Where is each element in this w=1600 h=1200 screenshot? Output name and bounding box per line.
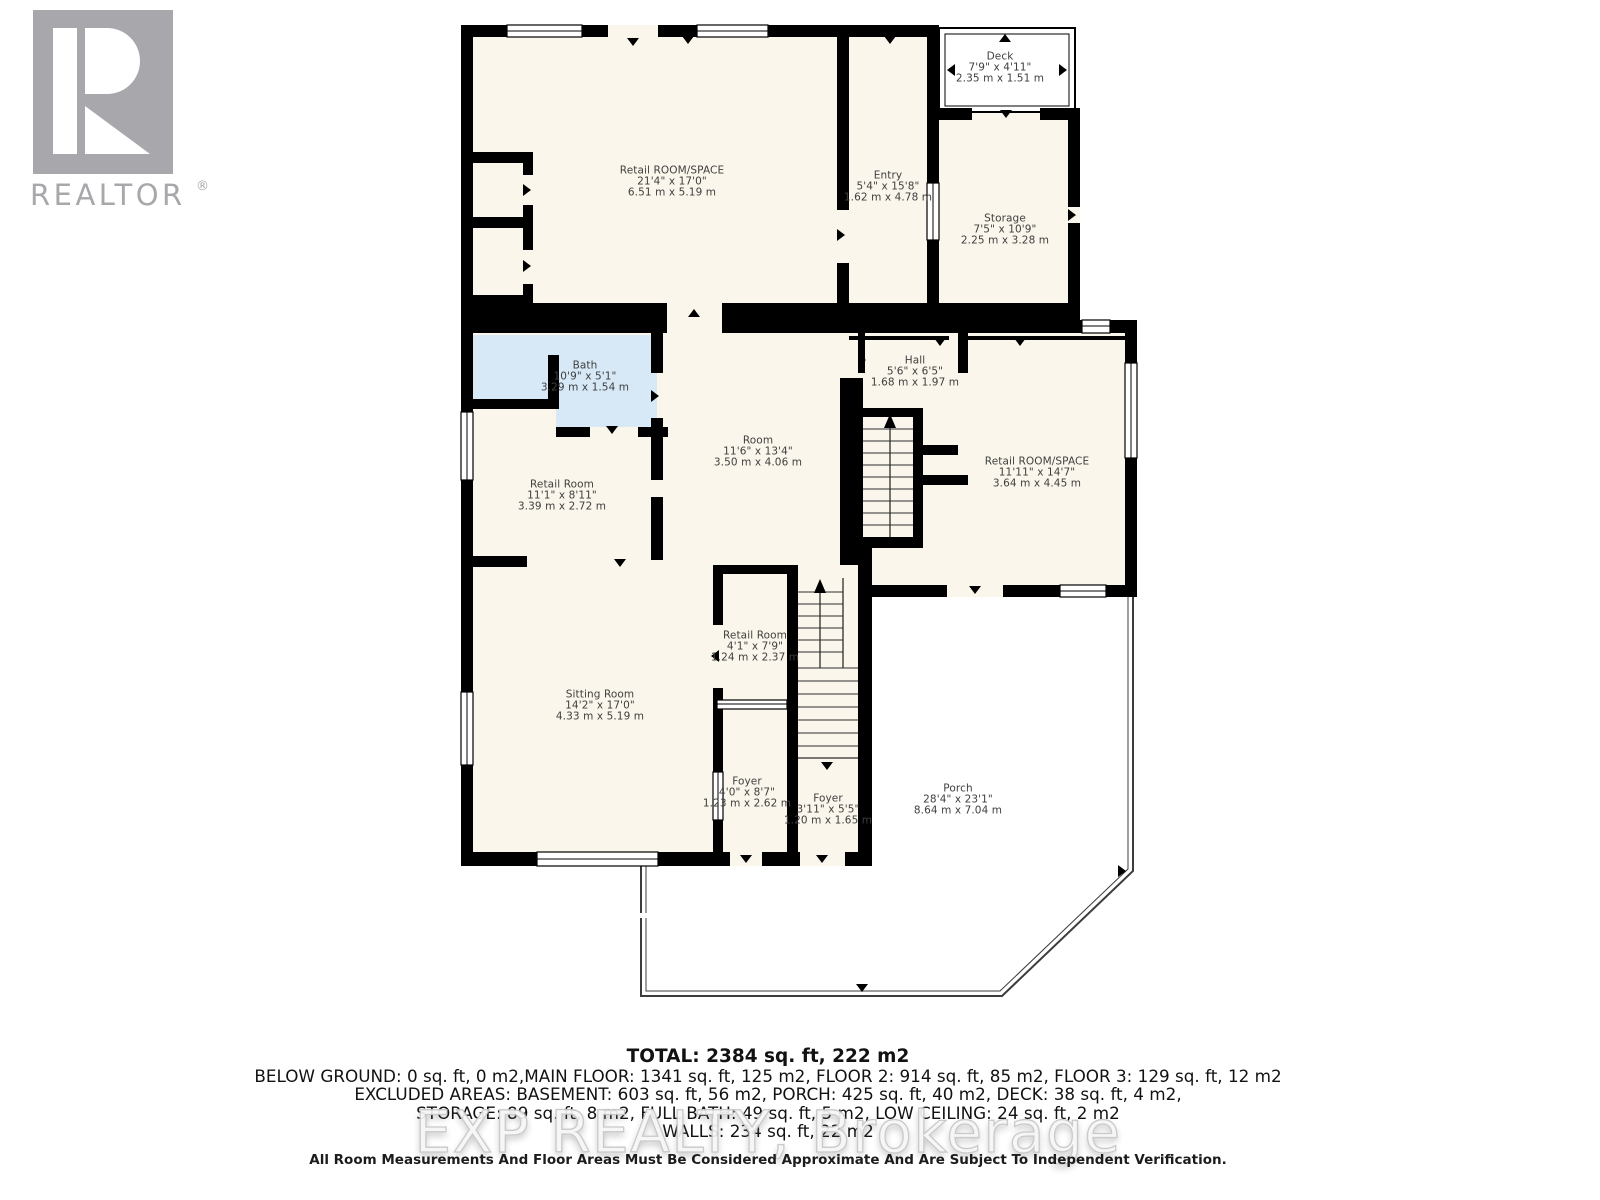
window [1125, 363, 1137, 458]
window [461, 412, 473, 480]
room-label-foyer-left: Foyer 4'0" x 8'7" 1.23 m x 2.62 m [703, 777, 791, 810]
disclaimer-text: All Room Measurements And Floor Areas Mu… [0, 1152, 1536, 1168]
floors-area-line: BELOW GROUND: 0 sq. ft, 0 m2,MAIN FLOOR:… [0, 1067, 1536, 1085]
window [717, 700, 787, 709]
window [1082, 320, 1110, 333]
room-label-foyer-right: Foyer 3'11" x 5'5" 1.20 m x 1.65 m [784, 794, 872, 827]
room-label-storage: Storage 7'5" x 10'9" 2.25 m x 3.28 m [961, 214, 1049, 247]
room-label-retail-room-space-right: Retail ROOM/SPACE 11'11" x 14'7" 3.64 m … [985, 457, 1089, 490]
room-label-bath: Bath 10'9" x 5'1" 3.29 m x 1.54 m [541, 361, 629, 394]
total-area-line: TOTAL: 2384 sq. ft, 222 m2 [0, 1047, 1536, 1067]
window [1060, 585, 1106, 597]
room-label-sitting-room: Sitting Room 14'2" x 17'0" 4.33 m x 5.19… [556, 690, 644, 723]
room-label-room-center: Room 11'6" x 13'4" 3.50 m x 4.06 m [714, 436, 802, 469]
window [697, 25, 768, 37]
room-label-porch: Porch 28'4" x 23'1" 8.64 m x 7.04 m [914, 784, 1002, 817]
floorplan-drawing [0, 0, 1600, 1200]
room-label-entry: Entry 5'4" x 15'8" 1.62 m x 4.78 m [844, 171, 932, 204]
room-label-retail-room-left: Retail Room 11'1" x 8'11" 3.39 m x 2.72 … [518, 480, 606, 513]
window [507, 25, 582, 37]
window [537, 852, 658, 866]
room-label-hall: Hall 5'6" x 6'5" 1.68 m x 1.97 m [871, 356, 959, 389]
room-label-retail-room-small: Retail Room 4'1" x 7'9" 1.24 m x 2.37 m [711, 631, 799, 664]
room-label-deck: Deck 7'9" x 4'11" 2.35 m x 1.51 m [956, 52, 1044, 85]
window [461, 692, 473, 765]
room-label-retail-room-space-upper: Retail ROOM/SPACE 21'4" x 17'0" 6.51 m x… [620, 166, 724, 199]
floorplan-page: REALTOR ® [0, 0, 1600, 1200]
